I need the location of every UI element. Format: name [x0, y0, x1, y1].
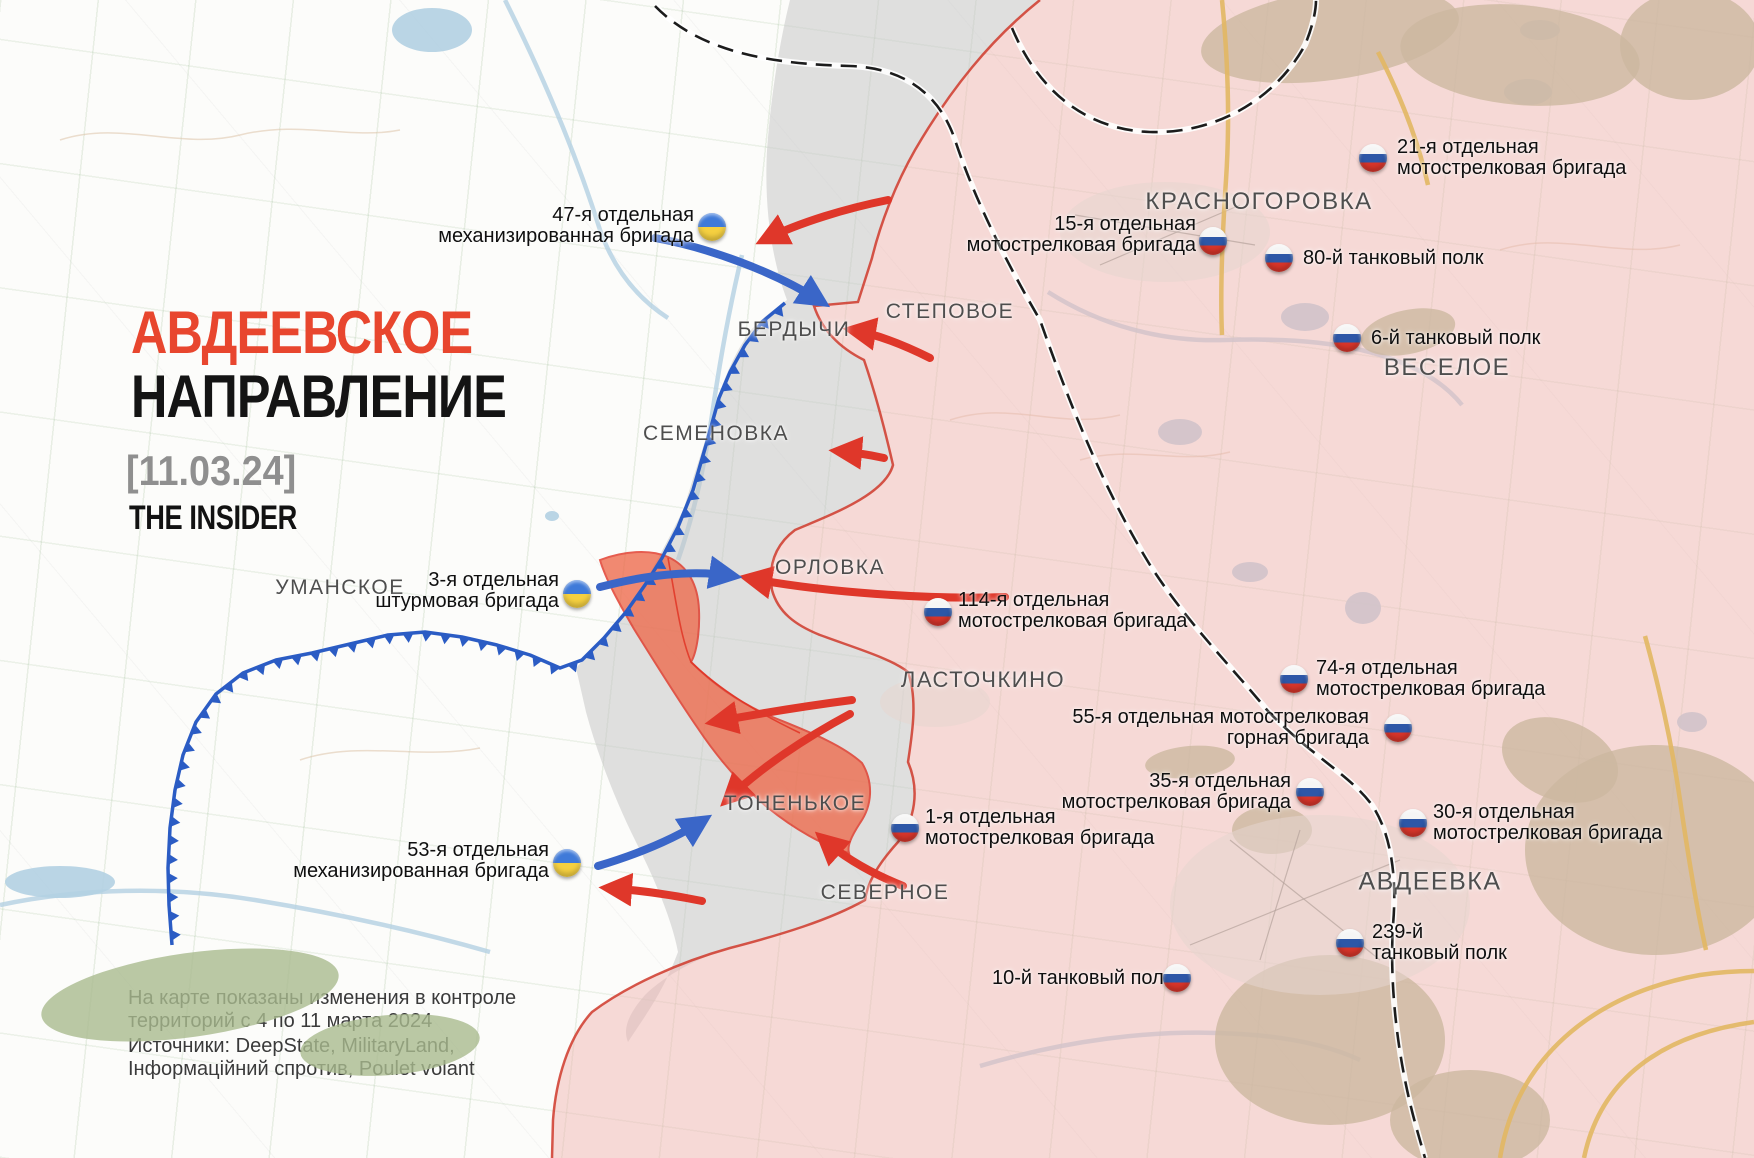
russia-flag-icon	[1296, 778, 1324, 806]
lake	[545, 511, 559, 521]
avdiivka-direction-map: АВДЕЕВСКОЕ НАПРАВЛЕНИЕ [11.03.24] THE IN…	[0, 0, 1754, 1158]
frontline-tooth	[421, 632, 432, 642]
unit-label-30th-motor-rifle-brigade: 30-я отдельнаямотострелковая бригада	[1433, 802, 1662, 844]
frontline-tooth	[168, 873, 178, 884]
russia-flag-icon	[1359, 144, 1387, 172]
ukraine-flag-icon	[698, 213, 726, 241]
ukraine-flag-icon	[563, 580, 591, 608]
russia-flag-icon	[1265, 244, 1293, 272]
stream	[505, 0, 668, 318]
frontline-tooth	[173, 797, 183, 808]
stream	[0, 891, 490, 952]
unit-label-114th-motor-rifle-brigade: 114-я отдельнаямотострелковая бригада	[958, 590, 1187, 632]
place-label-orlivka: ОРЛОВКА	[775, 556, 885, 580]
unit-label-53rd-mech-brigade: 53-я отдельнаямеханизированная бригада	[293, 840, 549, 882]
place-label-berdychi: БЕРДЫЧИ	[738, 318, 851, 342]
unit-label-80th-tank-regiment: 80-й танковый полк	[1303, 248, 1484, 269]
place-label-severne: СЕВЕРНОЕ	[821, 881, 950, 905]
forest-area	[298, 1007, 483, 1082]
unit-label-1st-motor-rifle-brigade: 1-я отдельнаямотострелковая бригада	[925, 807, 1154, 849]
frontline-tooth	[169, 911, 179, 922]
russia-flag-icon	[1399, 809, 1427, 837]
unit-label-3rd-assault-brigade: 3-я отдельнаяштурмовая бригада	[375, 570, 559, 612]
frontline-tooth	[384, 634, 395, 644]
frontline-tooth	[169, 835, 179, 846]
place-label-avdiivka: АВДЕЕВКА	[1359, 868, 1502, 897]
place-label-vesele: ВЕСЕЛОЕ	[1384, 354, 1510, 382]
place-label-stepove: СТЕПОВОЕ	[886, 300, 1014, 324]
frontline-tooth	[440, 634, 451, 644]
russia-flag-icon	[1336, 929, 1364, 957]
contour-line	[60, 129, 400, 140]
place-label-semenivka: СЕМЕНОВКА	[643, 422, 789, 446]
place-label-tonenke: ТОНЕНЬКОЕ	[724, 792, 866, 816]
frontline-tooth	[171, 930, 181, 941]
ukraine-flag-icon	[553, 849, 581, 877]
unit-label-74th-motor-rifle-brigade: 74-я отдельнаямотострелковая бригада	[1316, 658, 1545, 700]
unit-label-6th-tank-regiment: 6-й танковый полк	[1371, 328, 1540, 349]
russia-flag-icon	[891, 814, 919, 842]
lake	[392, 8, 472, 52]
place-label-krasnohorivka: КРАСНОГОРОВКА	[1145, 188, 1372, 216]
russia-flag-icon	[1163, 964, 1191, 992]
lake	[5, 866, 115, 898]
unit-label-10th-tank-regiment: 10-й танковый полк	[992, 968, 1173, 989]
frontline-tooth	[170, 816, 180, 827]
urban-area	[1170, 815, 1470, 995]
forest-area	[36, 933, 345, 1058]
russia-flag-icon	[924, 598, 952, 626]
unit-label-239th-tank-regiment: 239-йтанковый полк	[1372, 922, 1507, 964]
unit-label-21st-motor-rifle-brigade: 21-я отдельнаямотострелковая бригада	[1397, 137, 1626, 179]
unit-label-55th-mountain-brigade: 55-я отдельная мотострелковаягорная бриг…	[1072, 707, 1369, 749]
unit-label-47th-mech-brigade: 47-я отдельнаямеханизированная бригада	[438, 205, 694, 247]
frontline-tooth	[402, 633, 413, 643]
place-label-lastochkyne: ЛАСТОЧКИНО	[901, 667, 1065, 693]
frontline-tooth	[168, 854, 178, 865]
russia-flag-icon	[1280, 665, 1308, 693]
contour-line	[300, 748, 480, 760]
russia-flag-icon	[1333, 324, 1361, 352]
russia-flag-icon	[1199, 227, 1227, 255]
unit-label-15th-motor-rifle-brigade: 15-я отдельнаямотострелковая бригада	[967, 214, 1196, 256]
russia-flag-icon	[1384, 714, 1412, 742]
